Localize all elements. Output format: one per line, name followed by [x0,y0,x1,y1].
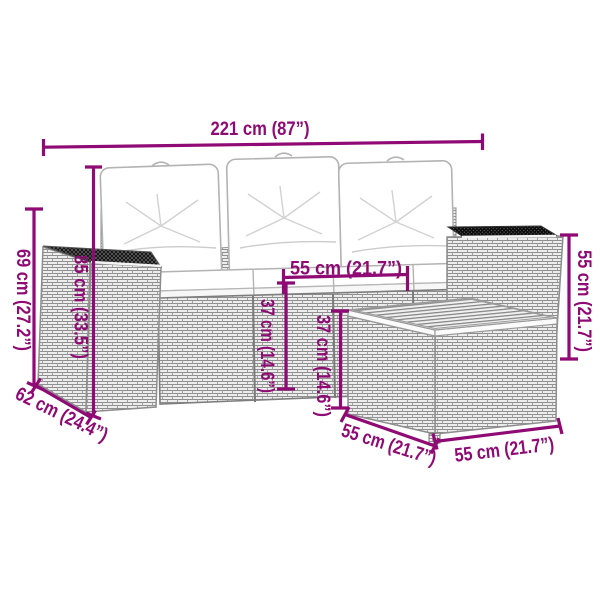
svg-text:221 cm (87”): 221 cm (87”) [211,118,310,140]
svg-text:37 cm (14.6”): 37 cm (14.6”) [312,315,334,417]
svg-text:85 cm (33.5”): 85 cm (33.5”) [70,255,92,359]
svg-text:55 cm (21.7”): 55 cm (21.7”) [290,258,402,280]
svg-text:69 cm (27.2”): 69 cm (27.2”) [12,249,34,351]
svg-text:37 cm (14.6”): 37 cm (14.6”) [256,299,278,393]
svg-text:55 cm (21.7”): 55 cm (21.7”) [573,250,595,352]
